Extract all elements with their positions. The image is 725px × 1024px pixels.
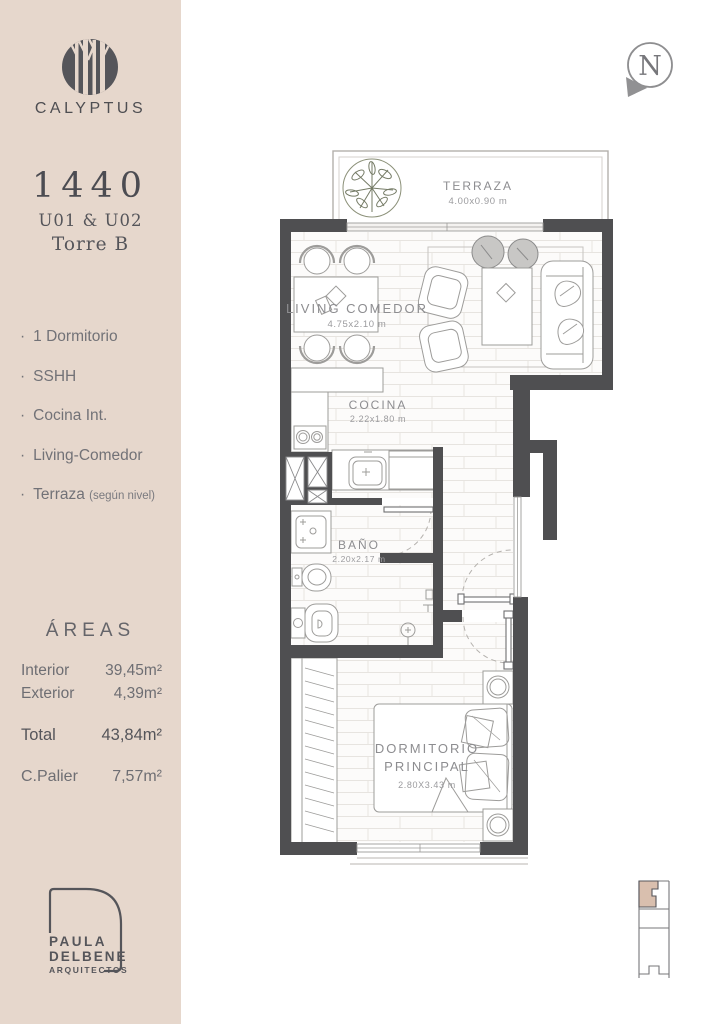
kitchen-counter [291,368,383,392]
area-label: C.Palier [21,768,78,786]
toilet-icon [291,604,338,642]
area-value: 43,84m² [101,726,162,745]
area-row-total: Total 43,84m² [21,726,162,745]
terraza-dims: 4.00x0.90 m [449,196,508,207]
key-plan [639,881,669,978]
tower-name: Torre B [0,234,181,255]
bano-label: BAÑO [338,538,380,552]
feature-label: 1 Dormitorio [33,328,117,345]
bullet: · [20,328,25,345]
dormitorio-label-2: PRINCIPAL [384,759,470,774]
north-indicator-icon: N [626,43,672,97]
north-label: N [638,51,662,82]
feature-label: SSHH [33,368,76,385]
area-label: Interior [21,662,69,680]
nightstand-lamp [483,671,513,704]
brand-name: CALYPTUS [0,100,181,118]
area-row-cpalier: C.Palier 7,57m² [21,768,162,786]
bed [374,704,512,812]
coffee-table [482,268,532,345]
sofa [541,261,593,369]
areas-title: ÁREAS [0,620,181,642]
terraza-area: TERRAZA 4.00x0.90 m [333,151,608,225]
feature-item: ·SSHH [20,368,155,386]
bullet: · [20,447,25,464]
key-plan-unit-highlight [639,881,658,907]
area-value: 39,45m² [105,662,162,680]
calyptus-logo-icon [59,36,121,98]
architect-title: ARQUITECTOS [49,965,128,975]
floorplan-sheet: TERRAZA 4.00x0.90 m [0,0,725,1024]
bullet: · [20,407,25,424]
feature-item: ·Terraza (según nivel) [20,486,155,504]
cocina-label: COCINA [349,398,408,412]
bano-dims: 2.20x2.17 m [332,554,385,564]
nightstand-lamp [483,809,513,841]
bullet: · [20,486,25,503]
feature-item: ·1 Dormitorio [20,328,155,346]
living-dims: 4.75x2.10 m [328,319,387,330]
terraza-label: TERRAZA [443,179,513,193]
unit-number: 1440 [0,166,181,206]
area-label: Total [21,726,56,745]
dormitorio-label-1: DORMITORIO [375,741,479,756]
closet [291,658,337,844]
area-value: 7,57m² [112,768,162,786]
area-row-exterior: Exterior 4,39m² [21,685,162,703]
feature-item: ·Cocina Int. [20,407,155,425]
area-label: Exterior [21,685,74,703]
unit-codes: U01 & U02 [0,211,181,230]
armchair [417,319,470,374]
bullet: · [20,368,25,385]
dormitorio-dims: 2.80X3.43 m [398,780,456,790]
vanity-icon [291,511,331,553]
feature-list: ·1 Dormitorio ·SSHH ·Cocina Int. ·Living… [20,328,155,526]
architect-name-1: PAULA [49,934,107,949]
cocina-dims: 2.22x1.80 m [350,414,406,424]
area-row-interior: Interior 39,45m² [21,662,162,680]
area-value: 4,39m² [114,685,162,703]
sidebar: CALYPTUS 1440 U01 & U02 Torre B ·1 Dormi… [0,0,181,1024]
feature-note: (según nivel) [89,490,155,502]
living-label: LIVING COMEDOR [286,301,428,316]
cooktop-icon [294,426,326,449]
feature-label: Living-Comedor [33,447,142,464]
feature-label: Terraza [33,486,85,503]
feature-item: ·Living-Comedor [20,447,155,465]
appliance-icon [389,451,434,489]
architect-name-2: DELBENE [49,949,128,964]
feature-label: Cocina Int. [33,407,107,424]
